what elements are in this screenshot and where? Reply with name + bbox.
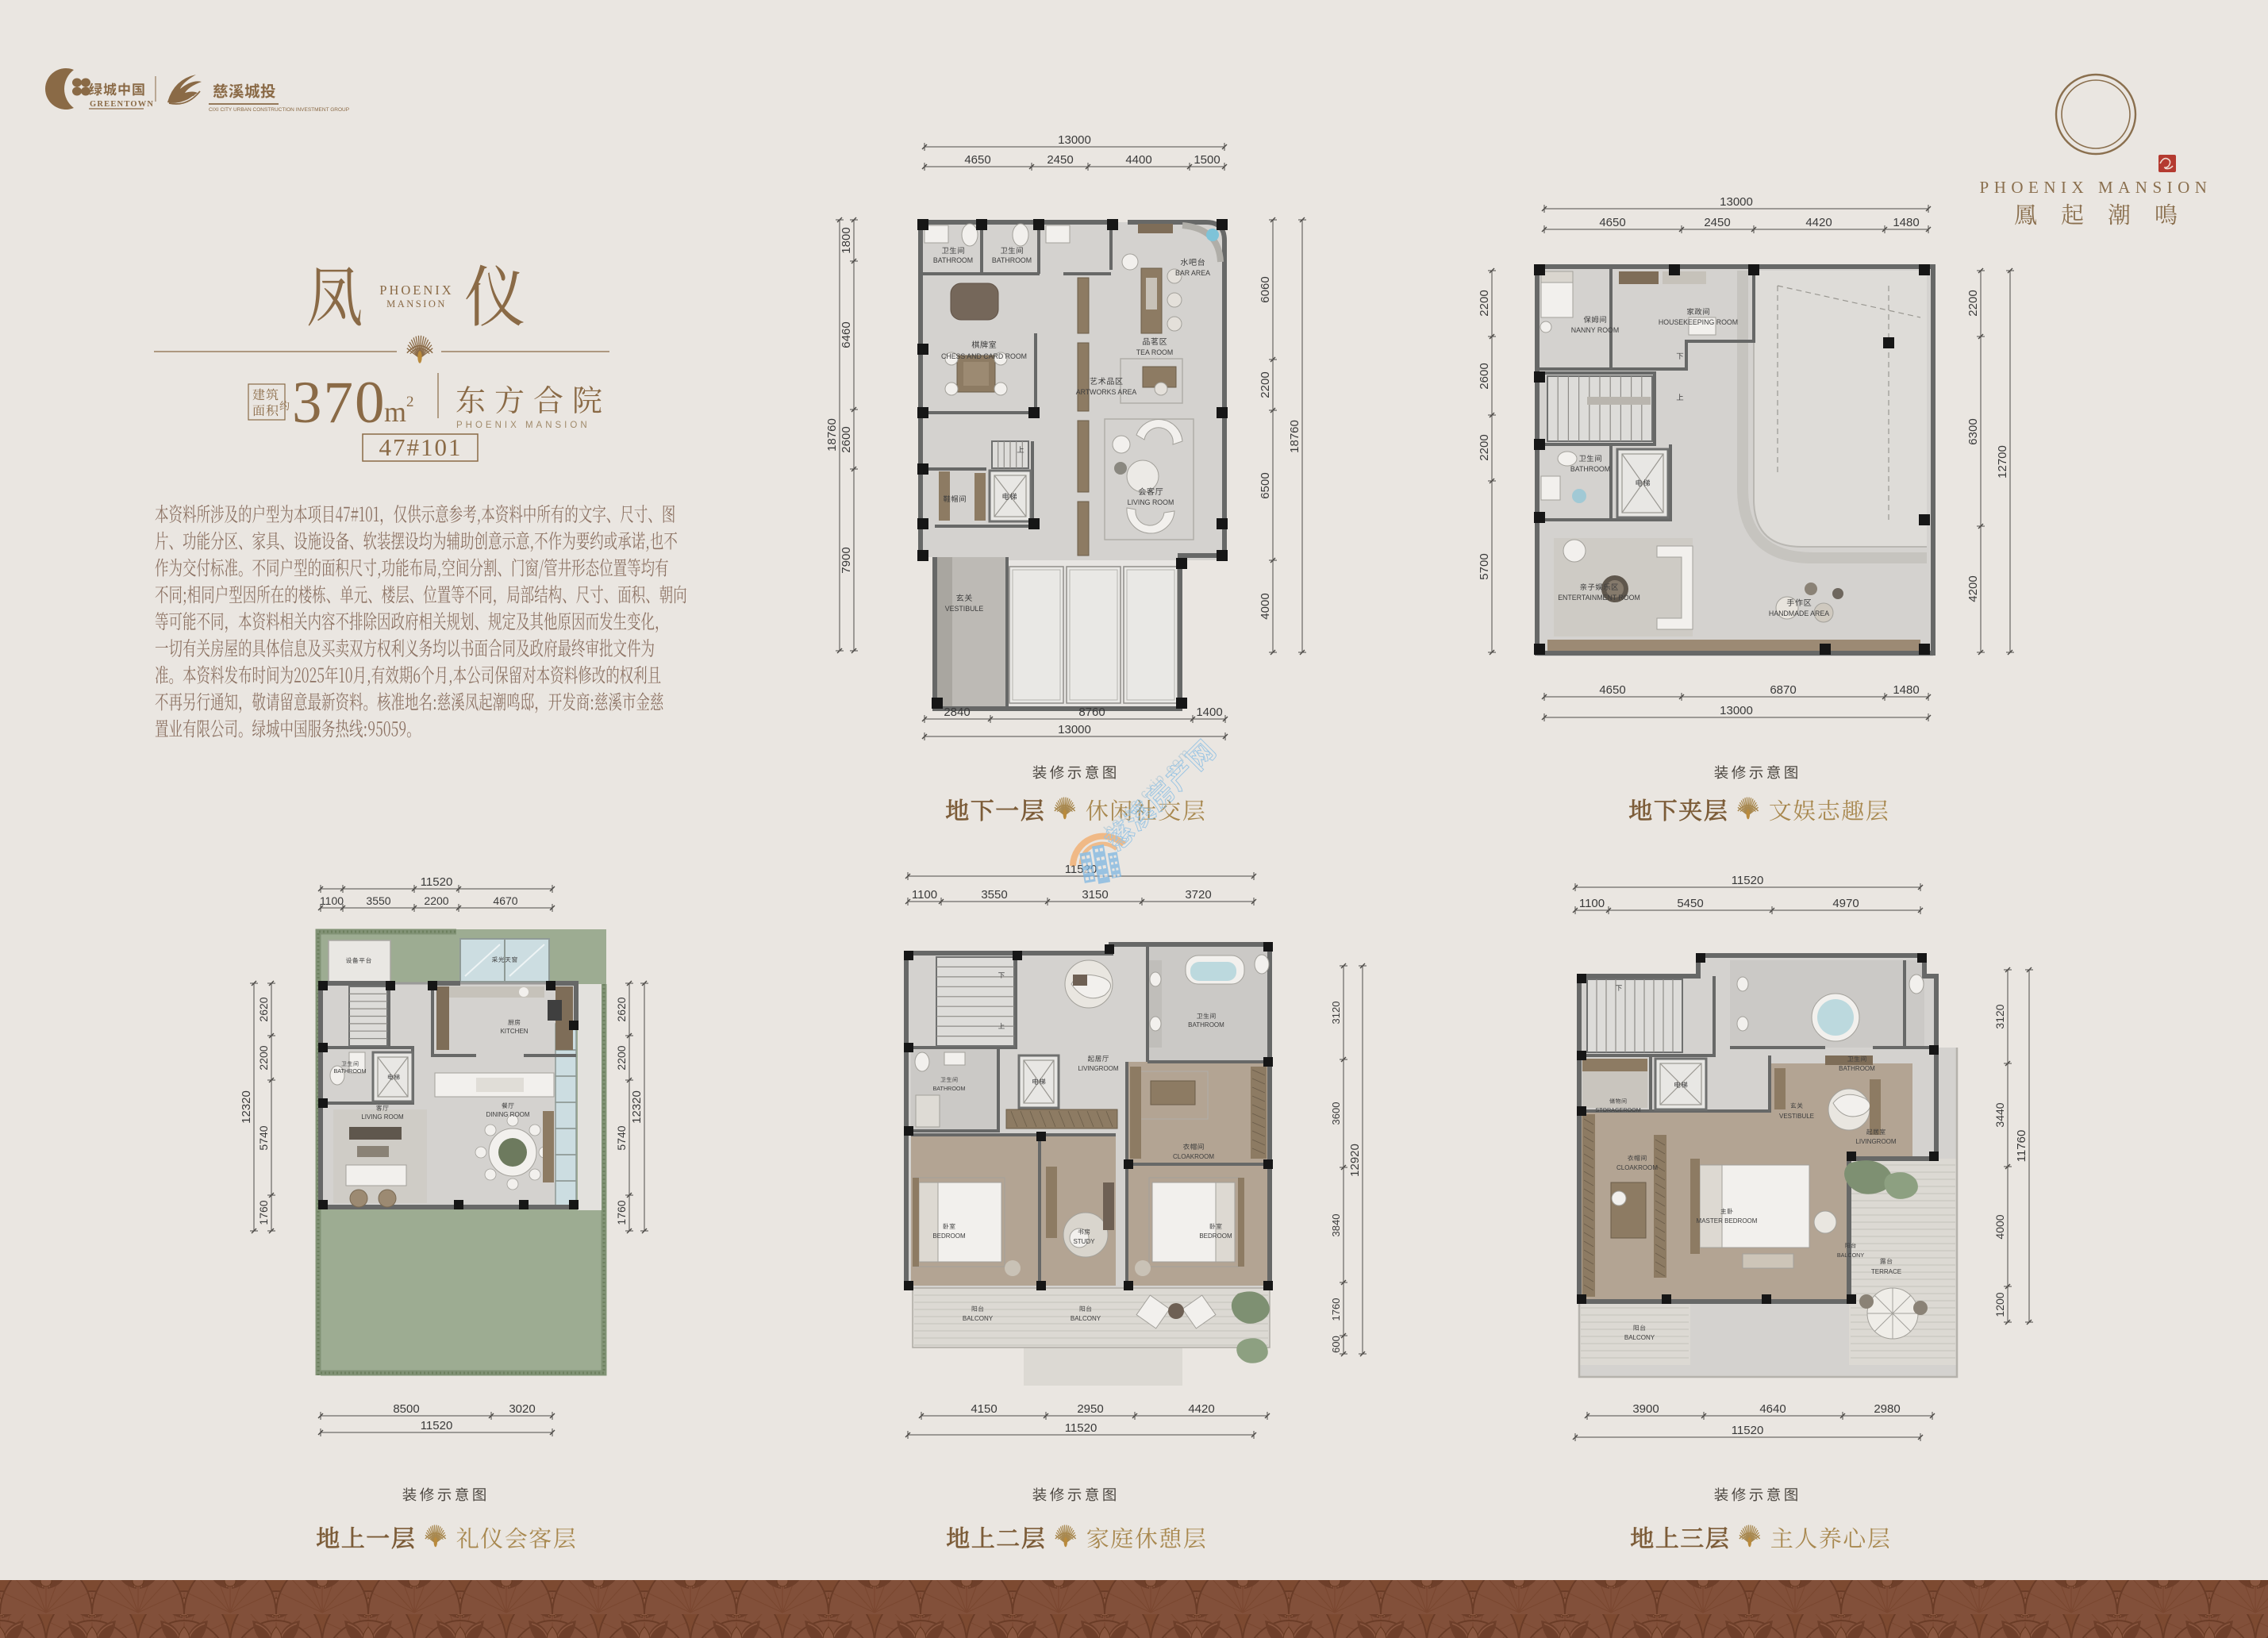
svg-text:4150: 4150	[971, 1402, 997, 1416]
svg-text:3120: 3120	[1993, 1004, 2006, 1029]
svg-text:4000: 4000	[1993, 1214, 2006, 1239]
svg-text:4670: 4670	[493, 894, 517, 907]
svg-text:5450: 5450	[1677, 897, 1703, 910]
svg-text:BATHROOM: BATHROOM	[933, 256, 973, 264]
svg-text:2600: 2600	[840, 426, 853, 452]
svg-text:HOUSEKEEPING ROOM: HOUSEKEEPING ROOM	[1659, 318, 1738, 326]
svg-text:13000: 13000	[1720, 704, 1753, 717]
svg-text:600: 600	[1330, 1336, 1342, 1353]
svg-text:BATHROOM: BATHROOM	[1188, 1021, 1224, 1029]
svg-text:2200: 2200	[257, 1045, 270, 1070]
svg-text:4400: 4400	[1125, 153, 1151, 167]
svg-text:2200: 2200	[424, 894, 448, 907]
svg-text:2620: 2620	[257, 997, 270, 1021]
svg-text:LIVINGROOM: LIVINGROOM	[1078, 1065, 1118, 1072]
svg-text:2620: 2620	[615, 997, 628, 1021]
svg-text:11520: 11520	[421, 1419, 453, 1432]
svg-text:BALCONY: BALCONY	[1071, 1315, 1101, 1322]
svg-text:1760: 1760	[615, 1200, 628, 1225]
svg-text:BATHROOM: BATHROOM	[992, 256, 1032, 264]
svg-text:3550: 3550	[366, 894, 390, 907]
svg-text:3600: 3600	[1330, 1102, 1342, 1125]
svg-text:CIXI CITY URBAN CONSTRUCTION I: CIXI CITY URBAN CONSTRUCTION INVESTMENT …	[209, 107, 349, 113]
svg-text:3120: 3120	[1330, 1002, 1342, 1025]
svg-text:BATHROOM: BATHROOM	[334, 1067, 367, 1075]
svg-text:3020: 3020	[509, 1402, 535, 1416]
svg-text:7900: 7900	[840, 547, 853, 573]
svg-text:18760: 18760	[1288, 420, 1301, 453]
svg-text:2450: 2450	[1047, 153, 1073, 167]
svg-text:13000: 13000	[1720, 195, 1753, 209]
svg-text:MASTER BEDROOM: MASTER BEDROOM	[1697, 1217, 1758, 1225]
svg-text:BEDROOM: BEDROOM	[932, 1232, 966, 1240]
svg-text:3720: 3720	[1185, 888, 1211, 902]
svg-text:STUDY: STUDY	[1073, 1238, 1095, 1245]
svg-text:47#101: 47#101	[379, 433, 463, 461]
svg-text:1400: 1400	[1196, 706, 1222, 719]
svg-text:GREENTOWN: GREENTOWN	[90, 100, 154, 109]
svg-text:CHESS AND CARD ROOM: CHESS AND CARD ROOM	[941, 352, 1027, 360]
svg-text:3840: 3840	[1330, 1214, 1342, 1237]
svg-text:BALCONY: BALCONY	[963, 1315, 994, 1322]
svg-text:6500: 6500	[1259, 472, 1272, 498]
svg-text:CLOAKROOM: CLOAKROOM	[1616, 1164, 1658, 1171]
svg-text:18760: 18760	[825, 418, 839, 452]
svg-text:STORAGEROOM: STORAGEROOM	[1595, 1106, 1640, 1113]
svg-text:2600: 2600	[1478, 363, 1491, 389]
svg-text:NANNY ROOM: NANNY ROOM	[1571, 326, 1619, 334]
svg-text:1100: 1100	[912, 888, 937, 902]
svg-text:11520: 11520	[421, 875, 453, 889]
svg-text:8760: 8760	[1078, 706, 1105, 719]
svg-text:BATHROOM: BATHROOM	[1570, 465, 1610, 473]
svg-text:6300: 6300	[1966, 418, 1980, 444]
svg-text:12320: 12320	[240, 1090, 253, 1124]
svg-text:CLOAKROOM: CLOAKROOM	[1173, 1153, 1214, 1160]
svg-text:13000: 13000	[1058, 133, 1091, 147]
svg-text:3550: 3550	[981, 888, 1007, 902]
svg-text:8500: 8500	[393, 1402, 419, 1416]
svg-text:6060: 6060	[1259, 276, 1272, 302]
svg-text:2: 2	[406, 394, 414, 410]
svg-text:BAR AREA: BAR AREA	[1175, 269, 1210, 277]
svg-text:12320: 12320	[630, 1090, 644, 1124]
svg-text:PHOENIX MANSION: PHOENIX MANSION	[1980, 178, 2212, 197]
svg-text:LIVING ROOM: LIVING ROOM	[361, 1113, 404, 1121]
svg-text:12920: 12920	[1348, 1144, 1362, 1177]
svg-text:VESTIBULE: VESTIBULE	[1779, 1113, 1814, 1120]
svg-text:2200: 2200	[1259, 371, 1272, 398]
svg-text:4650: 4650	[1599, 216, 1625, 229]
svg-text:LIVINGROOM: LIVINGROOM	[1855, 1138, 1896, 1145]
svg-text:1760: 1760	[1330, 1298, 1342, 1321]
svg-text:4420: 4420	[1188, 1402, 1214, 1416]
svg-text:3440: 3440	[1993, 1102, 2006, 1127]
svg-text:6870: 6870	[1770, 683, 1796, 697]
svg-text:2950: 2950	[1077, 1402, 1103, 1416]
svg-text:2200: 2200	[1478, 290, 1491, 316]
svg-text:13000: 13000	[1058, 723, 1091, 736]
svg-text:HANDMADE AREA: HANDMADE AREA	[1769, 609, 1829, 617]
svg-text:2200: 2200	[1966, 290, 1980, 316]
svg-text:5700: 5700	[1478, 553, 1491, 579]
svg-text:1800: 1800	[840, 227, 853, 253]
svg-text:12700: 12700	[1996, 445, 2009, 479]
svg-text:BALCONY: BALCONY	[1624, 1334, 1655, 1341]
svg-text:4420: 4420	[1805, 216, 1832, 229]
svg-text:MANSION: MANSION	[386, 298, 447, 310]
svg-text:TERRACE: TERRACE	[1871, 1268, 1901, 1275]
svg-text:370: 370	[292, 370, 386, 436]
svg-text:BATHROOM: BATHROOM	[933, 1085, 966, 1092]
svg-text:11520: 11520	[1732, 1424, 1764, 1437]
svg-text:2840: 2840	[944, 706, 970, 719]
svg-text:4000: 4000	[1259, 593, 1272, 619]
svg-text:2450: 2450	[1704, 216, 1730, 229]
svg-text:BALCONY: BALCONY	[1837, 1252, 1865, 1259]
svg-text:5740: 5740	[257, 1125, 270, 1150]
svg-text:2200: 2200	[615, 1045, 628, 1070]
svg-text:1480: 1480	[1893, 216, 1919, 229]
svg-text:KITCHEN: KITCHEN	[500, 1028, 528, 1035]
svg-text:5740: 5740	[615, 1125, 628, 1150]
svg-text:LIVING ROOM: LIVING ROOM	[1128, 498, 1174, 506]
svg-text:m: m	[384, 396, 406, 428]
svg-text:PHOENIX MANSION: PHOENIX MANSION	[456, 421, 590, 430]
svg-text:ENTERTAINMENT ROOM: ENTERTAINMENT ROOM	[1558, 594, 1640, 602]
svg-text:4640: 4640	[1759, 1402, 1786, 1416]
svg-text:4200: 4200	[1966, 575, 1980, 602]
svg-text:1100: 1100	[320, 894, 344, 907]
svg-text:4650: 4650	[1599, 683, 1625, 697]
svg-text:4970: 4970	[1832, 897, 1859, 910]
svg-text:3900: 3900	[1632, 1402, 1659, 1416]
svg-text:1760: 1760	[257, 1200, 270, 1225]
svg-text:BEDROOM: BEDROOM	[1199, 1232, 1232, 1240]
svg-text:1100: 1100	[1579, 897, 1605, 910]
svg-text:6460: 6460	[840, 321, 853, 348]
svg-text:ARTWORKS AREA: ARTWORKS AREA	[1076, 388, 1137, 396]
svg-text:DINING ROOM: DINING ROOM	[486, 1111, 529, 1118]
svg-text:1480: 1480	[1893, 683, 1919, 697]
svg-text:3150: 3150	[1082, 888, 1108, 902]
svg-text:1500: 1500	[1194, 153, 1220, 167]
svg-text:PHOENIX: PHOENIX	[379, 283, 453, 298]
svg-text:VESTIBULE: VESTIBULE	[945, 605, 984, 613]
svg-text:11520: 11520	[1732, 874, 1764, 887]
svg-text:BATHROOM: BATHROOM	[1839, 1065, 1875, 1072]
svg-text:1200: 1200	[1993, 1292, 2006, 1317]
svg-text:11520: 11520	[1065, 1421, 1097, 1435]
svg-text:2200: 2200	[1478, 434, 1491, 460]
svg-text:2980: 2980	[1874, 1402, 1900, 1416]
svg-text:4650: 4650	[964, 153, 990, 167]
svg-text:TEA ROOM: TEA ROOM	[1136, 348, 1173, 356]
svg-text:11760: 11760	[2015, 1130, 2028, 1163]
